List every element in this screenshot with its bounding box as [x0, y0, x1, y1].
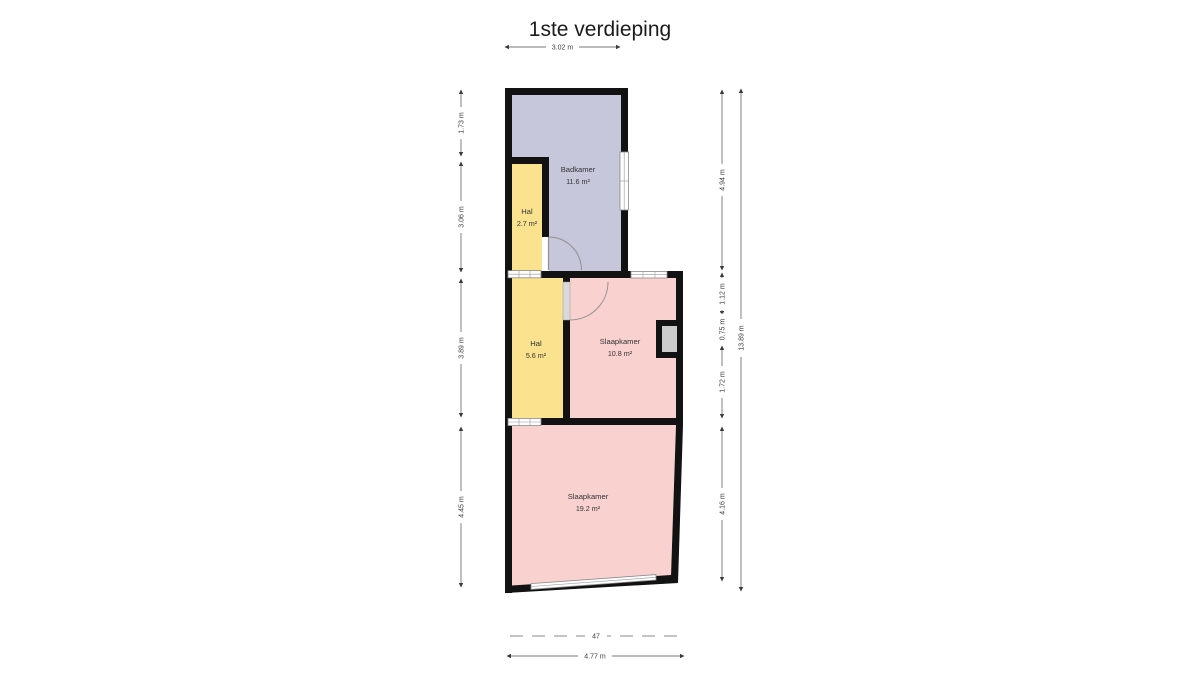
room-area-slaapkamer-small: 10.8 m² [608, 349, 633, 358]
dim-right-3: 0.75 m [720, 319, 727, 341]
dim-right-2: 1.12 m [720, 283, 727, 305]
dim-left-1: 1.73 m [459, 112, 466, 134]
room-label-slaapkamer-large: Slaapkamer [568, 492, 609, 501]
room-label-hal-large: Hal [530, 339, 542, 348]
room-label-slaapkamer-small: Slaapkamer [600, 337, 641, 346]
room-area-badkamer: 11.6 m² [566, 177, 590, 186]
room-hal-large [512, 278, 563, 418]
niche-chimney-inner [662, 326, 677, 352]
dim-right-5: 4.16 m [720, 493, 727, 515]
room-label-hal-small: Hal [521, 207, 533, 216]
door-leaf-slaapkamer [563, 282, 570, 320]
floor-plan-svg: 1ste verdieping [0, 0, 1200, 675]
dim-right-total: 13.89 m [739, 325, 746, 350]
dim-top: 3.02 m [552, 45, 574, 52]
dim-left-3: 3.89 m [459, 337, 466, 359]
dim-right-1: 4.94 m [720, 169, 727, 191]
dim-left-4: 4.45 m [459, 496, 466, 518]
page-title: 1ste verdieping [529, 18, 671, 41]
floor-plan-page: 1ste verdieping [0, 0, 1200, 675]
dim-right-4: 1.72 m [720, 371, 727, 393]
room-area-hal-small: 2.7 m² [517, 219, 538, 228]
room-area-hal-large: 5.6 m² [526, 351, 547, 360]
dim-bottom: 4.77 m [584, 654, 606, 661]
room-area-slaapkamer-large: 19.2 m² [576, 504, 601, 513]
parcel-number: 47 [592, 634, 600, 641]
dim-left-2: 3.06 m [459, 206, 466, 228]
room-hal-small [512, 164, 542, 271]
room-label-badkamer: Badkamer [561, 165, 596, 174]
